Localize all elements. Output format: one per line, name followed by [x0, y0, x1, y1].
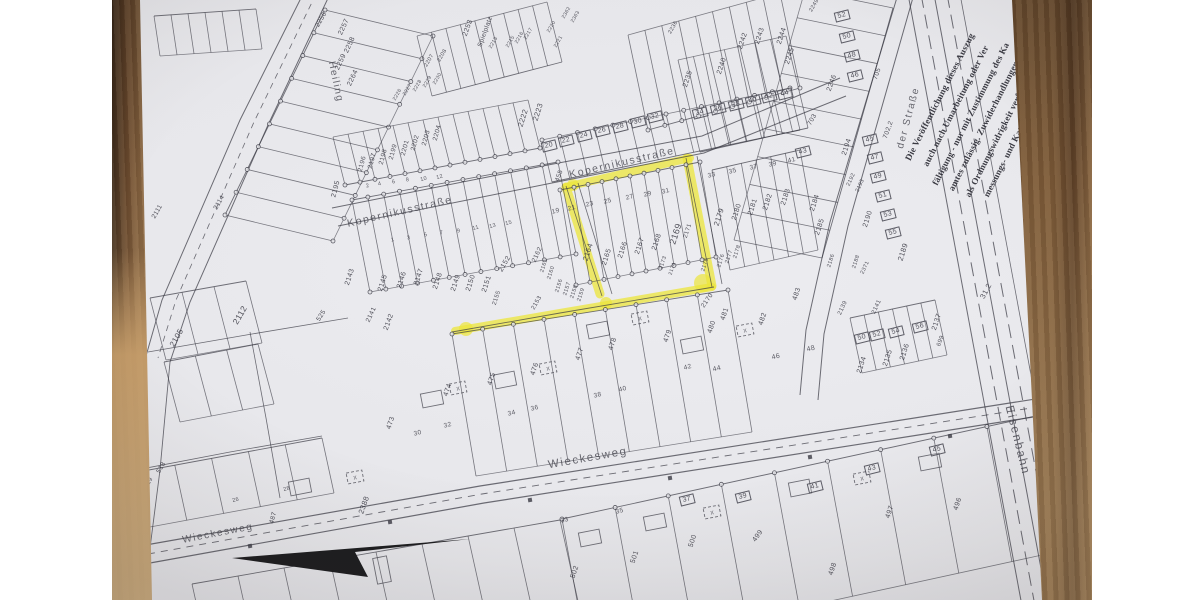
- house-number-label: 4: [378, 182, 383, 188]
- house-number-label: 54: [888, 325, 905, 338]
- house-number-label: 12: [436, 174, 444, 181]
- parcel-number-label: 2136: [899, 343, 911, 362]
- house-number-label: 36: [530, 405, 539, 413]
- parcel-number-label: 2199: [389, 143, 399, 160]
- house-number-label: 50: [854, 331, 871, 344]
- house-number-label: 40: [745, 94, 762, 107]
- parcel-number-label: 2189: [897, 242, 910, 262]
- parcel-number-label: 2243: [754, 27, 766, 46]
- parcel-number-label: 2150: [465, 274, 477, 293]
- house-number-label: 9: [457, 229, 462, 235]
- parcel-number-label: 2105: [169, 328, 186, 349]
- parcel-number-label: 2135: [882, 349, 894, 368]
- house-number-label: 52: [834, 9, 851, 22]
- street-name-label: Kopernikusstraße: [568, 146, 675, 181]
- house-number-label: 11: [472, 226, 480, 233]
- parcel-number-label: 2160: [547, 266, 557, 281]
- parcel-number-label: 2194: [841, 138, 853, 157]
- house-number-label: 48: [844, 49, 861, 62]
- house-number-label: 55: [885, 226, 902, 239]
- parcel-number-label: 479: [663, 329, 674, 343]
- parcel-number-label: 2173: [659, 256, 669, 271]
- parcel-number-label: 2171: [683, 223, 693, 239]
- parcel-number-label: 2151: [481, 275, 493, 294]
- house-number-label: 23: [585, 201, 594, 209]
- house-number-label: 51: [875, 189, 892, 202]
- house-number-label: 36: [710, 102, 727, 115]
- house-number-label: 5: [424, 233, 429, 239]
- parcel-number-label: 2222: [517, 108, 530, 128]
- parcel-number-label: 502: [570, 565, 581, 579]
- parcel-number-label: 2153: [531, 295, 544, 311]
- parcel-number-label: 477: [575, 347, 586, 361]
- parcel-number-label: 2174: [669, 262, 678, 276]
- parcel-number-label: 2164: [582, 242, 595, 262]
- parcel-number-label: 2142: [383, 313, 395, 332]
- house-number-label: 38: [728, 98, 745, 111]
- parcel-number-label: 2147: [413, 268, 425, 287]
- house-number-label: 20: [541, 139, 558, 152]
- house-number-label: 49: [870, 170, 887, 183]
- parcel-number-label: 2388: [357, 495, 370, 515]
- house-number-label: 7: [440, 231, 445, 237]
- parcel-number-label: 2245: [784, 47, 796, 66]
- parcel-number-label: 2236: [668, 21, 680, 36]
- parcel-number-label: 2175: [701, 258, 711, 273]
- parcel-number-label: 2179: [713, 207, 726, 227]
- parcel-number-label: 501: [630, 550, 641, 564]
- parcel-number-label: 2190: [862, 210, 874, 229]
- parcel-number-label: 2235: [682, 70, 694, 89]
- house-number-label: 8: [406, 178, 411, 184]
- house-number-label: 28: [612, 120, 629, 133]
- parcel-number-label: 455: [555, 169, 565, 183]
- parcel-number-label: 2202: [411, 134, 421, 151]
- parcel-number-label: 2213: [489, 36, 500, 50]
- house-number-label: 56: [912, 320, 929, 333]
- parcel-number-label: 496: [953, 497, 964, 511]
- house-number-label: 39: [768, 161, 777, 169]
- house-number-label: 40: [618, 386, 627, 394]
- parcel-number-label: 2146: [396, 271, 408, 290]
- parcel-number-label: 2149: [450, 274, 462, 293]
- parcel-number-label: 500: [688, 534, 699, 548]
- parcel-number-label: 2134: [856, 356, 868, 375]
- street-name-label: Wieckesweg: [182, 522, 255, 546]
- house-number-label: 47: [867, 151, 884, 164]
- parcel-number-label: 699: [936, 335, 945, 348]
- parcel-number-label: 2112: [231, 304, 248, 325]
- parcel-number-label: 2221: [554, 35, 565, 49]
- parcel-number-label: 498: [828, 562, 839, 576]
- house-number-label: 31: [661, 188, 670, 196]
- parcel-number-label: 2249: [809, 0, 821, 13]
- parcel-number-label: 31,2: [979, 282, 993, 300]
- parcel-number-label: 2166: [617, 241, 629, 260]
- parcel-number-label: 499: [751, 529, 764, 544]
- street-name-label: Eisenbahn: [1004, 404, 1033, 476]
- parcel-number-label: 2167: [634, 237, 646, 256]
- parcel-number-label: 2256: [315, 11, 329, 28]
- house-number-label: 48: [806, 345, 816, 354]
- house-number-label: 53: [880, 208, 897, 221]
- parcel-number-label: 2145: [377, 274, 389, 293]
- house-number-label: 43: [795, 145, 812, 158]
- house-number-label: 45: [862, 133, 879, 146]
- house-number-label: 38: [593, 392, 602, 400]
- parcel-number-label: 475: [487, 372, 498, 386]
- parcel-number-label: 497: [885, 505, 896, 519]
- house-number-label: 42: [683, 364, 692, 372]
- house-number-label: 37: [679, 493, 696, 506]
- house-number-label: 41: [807, 480, 824, 493]
- parcel-number-label: 2152: [498, 255, 513, 273]
- house-number-label: 39: [735, 490, 752, 503]
- parcel-number-label: 518: [156, 461, 168, 475]
- house-number-label: 44: [712, 365, 722, 374]
- parcel-number-label: 2155: [492, 290, 502, 306]
- parcel-number-label: 2226: [393, 88, 404, 102]
- parcel-number-label: 2264: [346, 69, 360, 88]
- parcel-number-label: 2217: [524, 27, 535, 41]
- house-number-label: 45: [929, 443, 946, 456]
- parcel-number-label: 2168: [651, 233, 663, 252]
- house-number-label: 30: [630, 115, 647, 128]
- parcel-number-label: 2137: [931, 313, 943, 332]
- house-number-label: 41: [787, 157, 796, 165]
- house-number-label: 30: [413, 430, 422, 438]
- house-number-label: 46: [771, 353, 781, 362]
- house-number-label: 34: [507, 410, 516, 418]
- house-number-label: 43: [864, 462, 881, 475]
- house-number-label: 28: [283, 486, 291, 493]
- parcel-number-label: 2111: [151, 204, 164, 220]
- parcel-number-label: 487: [269, 511, 278, 524]
- parcel-number-label: 2197: [368, 152, 378, 169]
- house-number-label: 46: [847, 69, 864, 82]
- parcel-number-label: 2258: [343, 36, 357, 55]
- parcel-number-label: 2223: [532, 102, 545, 122]
- street-name-label: Kopernikusstraße: [346, 195, 453, 230]
- parcel-number-label: 2244: [776, 27, 788, 46]
- parcel-number-label: 2178: [733, 245, 743, 260]
- parcel-number-label: 702,2: [883, 120, 895, 139]
- parcel-number-label: 2203: [422, 129, 432, 146]
- house-number-label: 32: [647, 110, 664, 123]
- parcel-number-label: 476: [530, 362, 541, 376]
- house-number-label: 6: [392, 180, 397, 186]
- parcel-number-label: 2184: [809, 194, 821, 213]
- house-number-label: 32: [443, 422, 452, 430]
- parcel-number-label: 2159: [577, 288, 587, 303]
- parcel-number-label: 481: [720, 307, 731, 321]
- house-number-label: 13: [489, 223, 497, 230]
- parcel-number-label: 2181: [747, 198, 759, 217]
- house-number-label: 25: [603, 198, 612, 206]
- parcel-number-label: 2139: [837, 300, 849, 316]
- house-number-label: 44: [777, 87, 794, 100]
- parcel-number-label: 2143: [344, 268, 356, 287]
- house-number-label: 26: [594, 124, 611, 137]
- parcel-number-label: 705: [873, 67, 883, 81]
- parcel-number-label: 2183: [780, 188, 792, 207]
- parcel-number-label: 482: [758, 312, 769, 326]
- parcel-number-label: 478: [608, 337, 619, 351]
- parcel-number-label: 2185: [814, 218, 826, 237]
- parcel-number-label: 2230: [433, 72, 444, 86]
- parcel-number-label: 2188: [852, 255, 862, 270]
- house-number-label: 37: [749, 164, 758, 172]
- house-number-label: 50: [839, 30, 856, 43]
- house-number-label: 27: [625, 194, 634, 202]
- parcel-number-label: 2363: [571, 10, 582, 24]
- street-name-label: Wieckesweg: [547, 446, 628, 471]
- parcel-number-label: 474: [443, 383, 454, 397]
- parcel-number-label: 2186: [827, 254, 837, 269]
- house-number-label: 52: [869, 328, 886, 341]
- parcel-number-label: 2220: [547, 20, 558, 34]
- parcel-number-label: 2141: [871, 299, 883, 315]
- parcel-number-label: 483: [792, 287, 803, 301]
- house-number-label: 33: [707, 172, 716, 180]
- parcel-number-label: 2148: [432, 272, 444, 291]
- house-number-label: 19: [551, 208, 560, 216]
- parcel-number-label: 2204: [433, 124, 443, 141]
- house-number-label: 35: [728, 168, 737, 176]
- parcel-number-label: 2180: [731, 203, 743, 222]
- house-number-label: 3: [407, 236, 412, 242]
- parcel-number-label: 703: [807, 113, 819, 127]
- parcel-number-label: 2169: [668, 222, 683, 245]
- house-number-label: 22: [558, 134, 575, 147]
- house-number-label: 1: [391, 238, 396, 244]
- parcel-number-label: 2253: [462, 19, 474, 38]
- parcel-number-label: 2208: [437, 49, 449, 64]
- parcel-number-label: 2170: [701, 293, 716, 310]
- parcel-number-label: 2114: [213, 195, 226, 212]
- parcel-number-label: 2141: [366, 306, 379, 323]
- parcel-number-label: 2182: [762, 193, 774, 212]
- parcel-number-label: 2193: [856, 179, 867, 194]
- house-number-label: 24: [576, 129, 593, 142]
- parcel-number-label: 2371: [861, 261, 872, 276]
- parcel-number-label: 473: [386, 416, 397, 430]
- parcel-number-label: 2242: [737, 32, 749, 51]
- house-number-label: 21: [567, 205, 576, 213]
- parcel-number-label: 525: [316, 309, 328, 323]
- house-number-label: 10: [420, 176, 428, 183]
- house-number-label: 34: [692, 106, 709, 119]
- photo-of-cadastral-map: xxxxxxx 22562257225822592264219521962197…: [0, 0, 1200, 600]
- house-number-label: 42: [761, 90, 778, 103]
- house-number-label: 29: [643, 191, 652, 199]
- house-number-label: 2: [366, 184, 371, 190]
- parcel-number-label: 480: [707, 320, 718, 334]
- parcel-number-label: 2246: [826, 74, 838, 93]
- house-number-label: 26: [232, 497, 240, 504]
- parcel-number-label: 2195: [330, 180, 341, 198]
- house-number-label: 35: [615, 508, 624, 516]
- house-number-label: 15: [505, 220, 513, 227]
- parcel-number-label: 2240: [716, 57, 728, 76]
- house-number-label: 33: [560, 517, 569, 525]
- parcel-number-label: 2207: [424, 54, 436, 69]
- parcel-number-label: 2257: [337, 18, 351, 37]
- parcel-number-label: 2165: [601, 248, 613, 267]
